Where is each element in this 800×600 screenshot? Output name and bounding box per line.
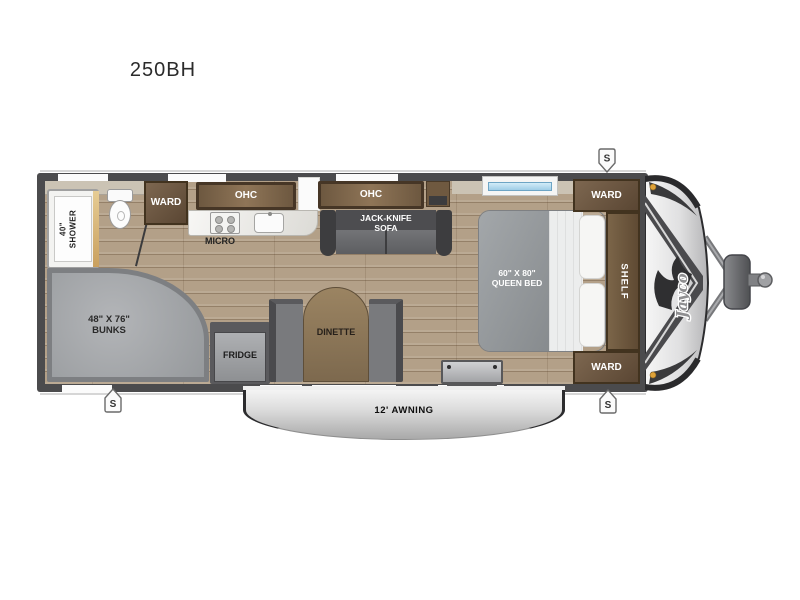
wardrobe-kitchen: WARD: [144, 181, 188, 225]
overhead-cabinet-living-label: OHC: [360, 189, 382, 201]
jack-knife-sofa: JACK-KNIFE SOFA: [320, 210, 452, 256]
sofa-armrest-left: [320, 210, 336, 256]
nightstand-front: [429, 196, 447, 205]
overhead-cabinet-living: OHC: [318, 181, 424, 209]
burner: [227, 225, 235, 233]
kitchen-counter: [188, 210, 318, 236]
pantry-cabinet: [298, 177, 320, 211]
microwave-label: MICRO: [196, 236, 244, 247]
sofa-seat-divider: [385, 230, 387, 254]
roof-trim-top: [40, 170, 646, 172]
dinette-bench-right: [369, 299, 403, 382]
svg-text:S: S: [110, 399, 117, 410]
shower-label: 40" SHOWER: [58, 194, 77, 264]
front-shelf-label: SHELF: [618, 263, 629, 299]
clearance-light: [650, 184, 656, 190]
bed-window-glass: [488, 182, 552, 191]
wardrobe-front-bottom-label: WARD: [591, 362, 622, 374]
stove: [210, 212, 240, 234]
wardrobe-front-bottom: WARD: [573, 351, 640, 384]
toilet-drain: [117, 211, 125, 221]
bed-blanket: [549, 211, 583, 352]
dinette-label: DINETTE: [303, 327, 369, 338]
sofa-armrest-right: [436, 210, 452, 256]
svg-text:S: S: [604, 154, 611, 165]
awning-label: 12' AWNING: [246, 405, 562, 416]
entry-step-upper: [441, 360, 503, 384]
sink: [254, 213, 284, 233]
bed-pillow: [579, 283, 605, 347]
speaker-icon: S: [599, 389, 617, 414]
wardrobe-kitchen-label: WARD: [151, 197, 182, 209]
queen-bed-label: 60" X 80" QUEEN BED: [481, 269, 553, 289]
front-cap-and-hitch: Jayco: [645, 170, 775, 396]
page-title: 250BH: [118, 58, 208, 82]
step-bolt: [447, 365, 451, 369]
bunks-label: 48" X 76" BUNKS: [44, 314, 174, 337]
propane-tank-cover: [724, 255, 750, 309]
fridge-label: FRIDGE: [210, 350, 270, 361]
bed-pillow: [579, 215, 605, 279]
overhead-cabinet-kitchen-label: OHC: [235, 190, 257, 202]
wardrobe-front-top: WARD: [573, 179, 640, 212]
awning: 12' AWNING: [243, 390, 565, 440]
step-bolt: [493, 365, 497, 369]
floorplan-page: 250BH 40" SHOWER WARD OHC MICRO OHC: [0, 0, 800, 600]
front-shelf: SHELF: [606, 212, 640, 351]
hitch-coupler-ball: [758, 273, 772, 287]
speaker-icon: S: [104, 388, 122, 413]
nightstand: [426, 181, 450, 207]
burner: [215, 225, 223, 233]
clearance-light: [650, 372, 656, 378]
queen-bed: 60" X 80" QUEEN BED: [478, 210, 606, 352]
hitch-coupler-highlight: [761, 275, 765, 279]
sofa-label: JACK-KNIFE SOFA: [336, 214, 436, 234]
dinette-bench-left: [269, 299, 303, 382]
faucet: [268, 212, 272, 216]
speaker-icon: S: [598, 148, 616, 173]
jayco-brand-text: Jayco: [673, 273, 691, 321]
wardrobe-front-top-label: WARD: [591, 190, 622, 202]
shower-door-strip: [93, 191, 99, 267]
burner: [227, 216, 235, 224]
burner: [215, 216, 223, 224]
svg-text:S: S: [605, 400, 612, 411]
overhead-cabinet-kitchen: OHC: [196, 182, 296, 210]
